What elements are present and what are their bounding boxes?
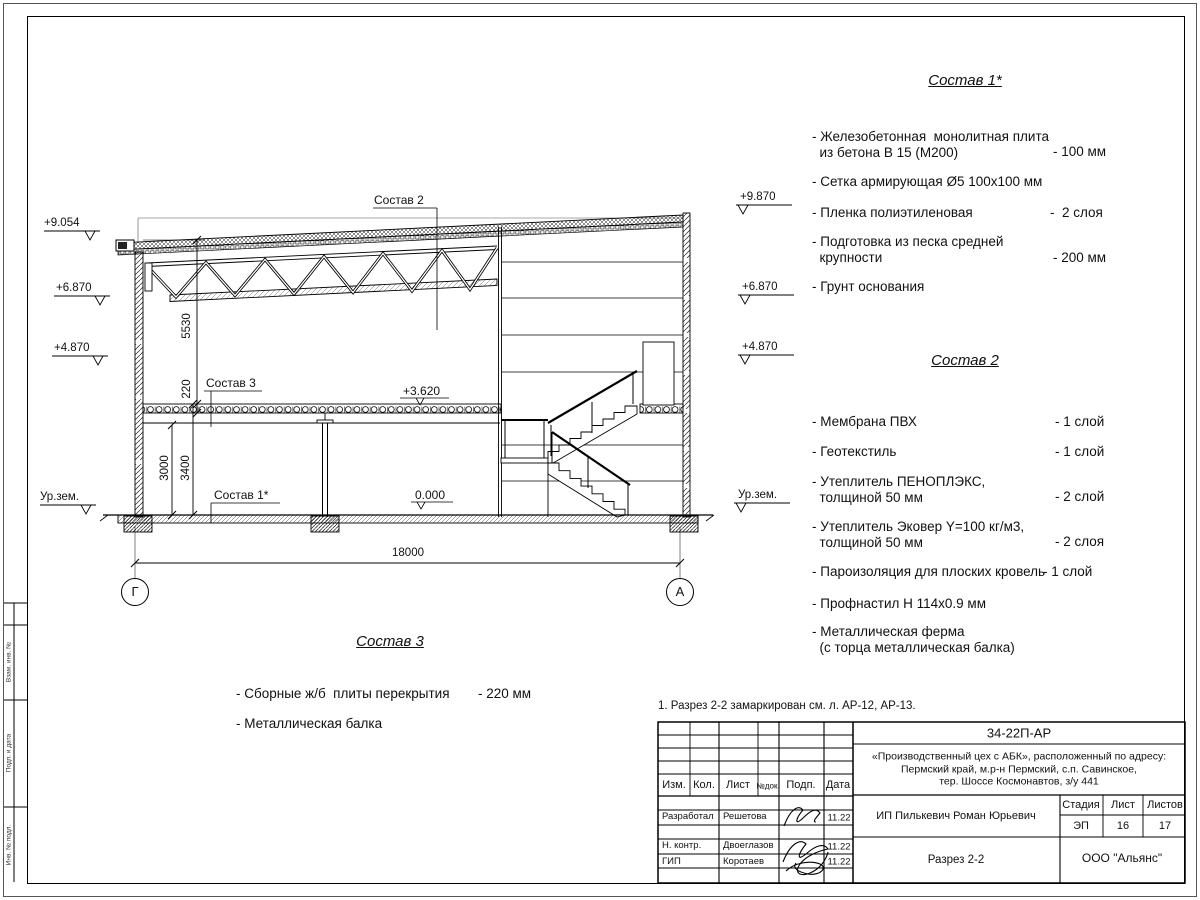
sheets-total: 17 bbox=[1159, 820, 1171, 832]
footing bbox=[670, 516, 698, 532]
dimension-label: 18000 bbox=[392, 547, 424, 561]
roof-truss bbox=[145, 246, 497, 302]
elevation-mark: Ур.зем. bbox=[40, 491, 79, 505]
signature-razrabotal bbox=[784, 808, 820, 826]
list-item: - Утеплитель ПЕНОПЛЭКС, толщиной 50 мм bbox=[812, 474, 985, 505]
stage-label: Стадия bbox=[1062, 799, 1100, 811]
stair-landing bbox=[501, 458, 548, 463]
side-stamp-label: Подп. и дата bbox=[6, 734, 13, 772]
list-item: - Сетка армирующая Ø5 100х100 мм bbox=[812, 174, 1042, 190]
dimension-label: 3000 bbox=[159, 455, 173, 481]
stamp-header-list: Лист bbox=[726, 779, 750, 791]
list-item: - Металлическая балка bbox=[236, 716, 382, 732]
sheet-label: Лист bbox=[1111, 799, 1135, 811]
ground bbox=[100, 515, 714, 532]
truss-end-post bbox=[145, 263, 152, 291]
elevation-mark: +4.870 bbox=[54, 342, 90, 356]
stamp-header-izm: Изм. bbox=[662, 779, 686, 791]
stamp-role: ГИП bbox=[662, 856, 681, 867]
callout-leaders bbox=[204, 208, 453, 523]
list-item: - Утеплитель Эковер Y=100 кг/м3, толщино… bbox=[812, 519, 1024, 550]
stamp-date: 11.22 bbox=[827, 842, 850, 853]
list-item: - Профнастил Н 114х0.9 мм bbox=[812, 596, 986, 612]
elevation-mark: Ур.зем. bbox=[738, 489, 777, 503]
list-title-sostav2: Состав 2 bbox=[790, 352, 1140, 369]
elevation-mark: +6.870 bbox=[56, 282, 92, 296]
stamp-header-podp: Подп. bbox=[786, 779, 815, 791]
callout-sostav3: Состав 3 bbox=[206, 376, 256, 390]
list-item-value: - 2 слоя bbox=[1050, 205, 1103, 220]
footing bbox=[311, 516, 339, 532]
door-leaf bbox=[643, 342, 674, 405]
list-item-value: - 2 слоя bbox=[1055, 534, 1104, 549]
callout-sostav2: Состав 2 bbox=[374, 193, 424, 207]
side-stamp-label: Взам. инв. № bbox=[6, 642, 13, 682]
signature-gip bbox=[783, 842, 828, 875]
stamp-role: Разработал bbox=[662, 811, 714, 822]
stamp-date: 11.22 bbox=[827, 813, 850, 824]
list-item: - Мембрана ПВХ bbox=[812, 414, 917, 430]
signatures bbox=[783, 808, 828, 875]
stamp-header-kol: Кол. bbox=[693, 779, 715, 791]
stamp-name: Решетова bbox=[723, 811, 767, 822]
dimension-label: 3400 bbox=[180, 455, 194, 481]
roof-edge-cap-fill bbox=[118, 242, 127, 249]
sheets-label: Листов bbox=[1147, 799, 1183, 811]
level-label: +3.620 bbox=[403, 384, 440, 398]
list-item-value: - 1 слой bbox=[1055, 414, 1104, 429]
axis-bubble-g: Г bbox=[121, 578, 149, 606]
list-item: - Сборные ж/б плиты перекрытия bbox=[236, 686, 450, 702]
wall-axis-a bbox=[683, 213, 690, 517]
sheet-title: Разрез 2-2 bbox=[928, 854, 984, 866]
list-item: - Геотекстиль bbox=[812, 444, 896, 460]
elevation-mark: +9.870 bbox=[740, 191, 776, 205]
list-item: - Железобетонная монолитная плита из бет… bbox=[812, 129, 1049, 160]
dimension-label: 220 bbox=[181, 379, 195, 398]
elevation-mark: +4.870 bbox=[742, 341, 778, 355]
stamp-name: Двоеглазов bbox=[723, 840, 774, 851]
project-description: «Производственный цех с АБК», расположен… bbox=[872, 750, 1166, 788]
list-item-value: - 100 мм bbox=[1053, 144, 1106, 159]
dimension-label: 5530 bbox=[181, 313, 195, 339]
list-title-sostav3: Состав 3 bbox=[240, 633, 540, 650]
list-item-value: - 2 слой bbox=[1055, 489, 1104, 504]
stage-value: ЭП bbox=[1073, 820, 1089, 832]
roof bbox=[116, 215, 683, 255]
axis-bubble-a: А bbox=[666, 578, 694, 606]
floor-slab bbox=[143, 404, 683, 423]
elevation-mark: +6.870 bbox=[742, 281, 778, 295]
sheet-note: 1. Разрез 2-2 замаркирован см. л. АР-12,… bbox=[658, 700, 916, 712]
list-item: - Грунт основания bbox=[812, 279, 924, 295]
list-item: - Подготовка из песка средней крупности bbox=[812, 234, 1003, 265]
interior-wall-line bbox=[499, 227, 502, 517]
drawing-sheet: +9.054 +6.870 +4.870 Ур.зем. +9.870 +6.8… bbox=[0, 0, 1200, 900]
elevation-mark: +9.054 bbox=[44, 217, 80, 231]
side-stamp-label: Инв. № подл. bbox=[6, 825, 13, 866]
middle-column bbox=[317, 413, 333, 517]
document-number: 34-22П-АР bbox=[987, 726, 1051, 741]
level-label: 0.000 bbox=[415, 488, 445, 502]
stamp-header-ndok: №док. bbox=[756, 782, 779, 791]
stair-lower-flight bbox=[548, 463, 625, 517]
stamp-name: Коротаев bbox=[723, 856, 764, 867]
footing bbox=[124, 516, 152, 532]
list-item: - Пленка полиэтиленовая bbox=[812, 205, 973, 221]
stamp-role: Н. контр. bbox=[662, 840, 701, 851]
list-item-value: - 200 мм bbox=[1053, 250, 1106, 265]
list-item: - Металлическая ферма (с торца металличе… bbox=[812, 624, 1015, 655]
list-item-value: - 1 слой bbox=[1055, 444, 1104, 459]
list-title-sostav1: Состав 1* bbox=[790, 72, 1140, 89]
client-name: ИП Пилькевич Роман Юрьевич bbox=[876, 810, 1035, 822]
callout-sostav1: Состав 1* bbox=[214, 488, 268, 502]
stamp-date: 11.22 bbox=[827, 857, 850, 868]
wall-axis-g bbox=[135, 252, 143, 517]
list-item: - Пароизоляция для плоских кровель bbox=[812, 564, 1045, 580]
stamp-header-data: Дата bbox=[826, 779, 850, 791]
list-item-value: - 1 слой bbox=[1043, 564, 1092, 579]
sheet-number: 16 bbox=[1117, 820, 1129, 832]
staircase bbox=[501, 371, 637, 517]
company-name: ООО "Альянс" bbox=[1082, 851, 1162, 865]
list-item-value: - 220 мм bbox=[478, 686, 531, 701]
